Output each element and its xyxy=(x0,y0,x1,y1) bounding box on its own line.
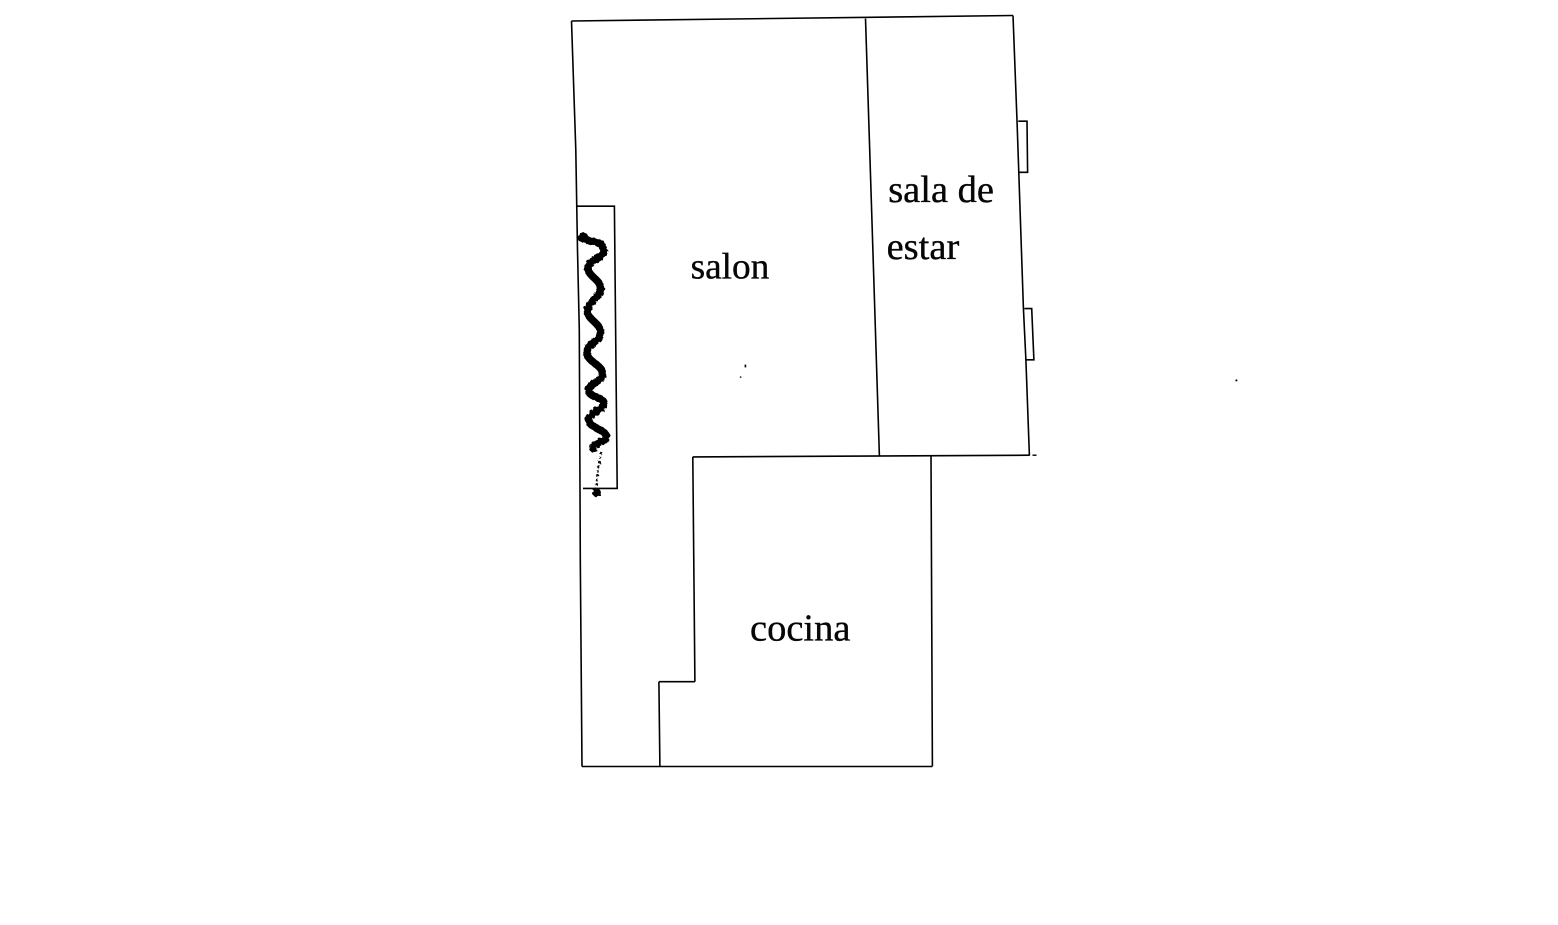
svg-text:cocina: cocina xyxy=(750,607,850,649)
svg-text:sala de: sala de xyxy=(888,169,994,211)
svg-text:salon: salon xyxy=(691,247,770,288)
svg-text:estar: estar xyxy=(887,226,960,268)
